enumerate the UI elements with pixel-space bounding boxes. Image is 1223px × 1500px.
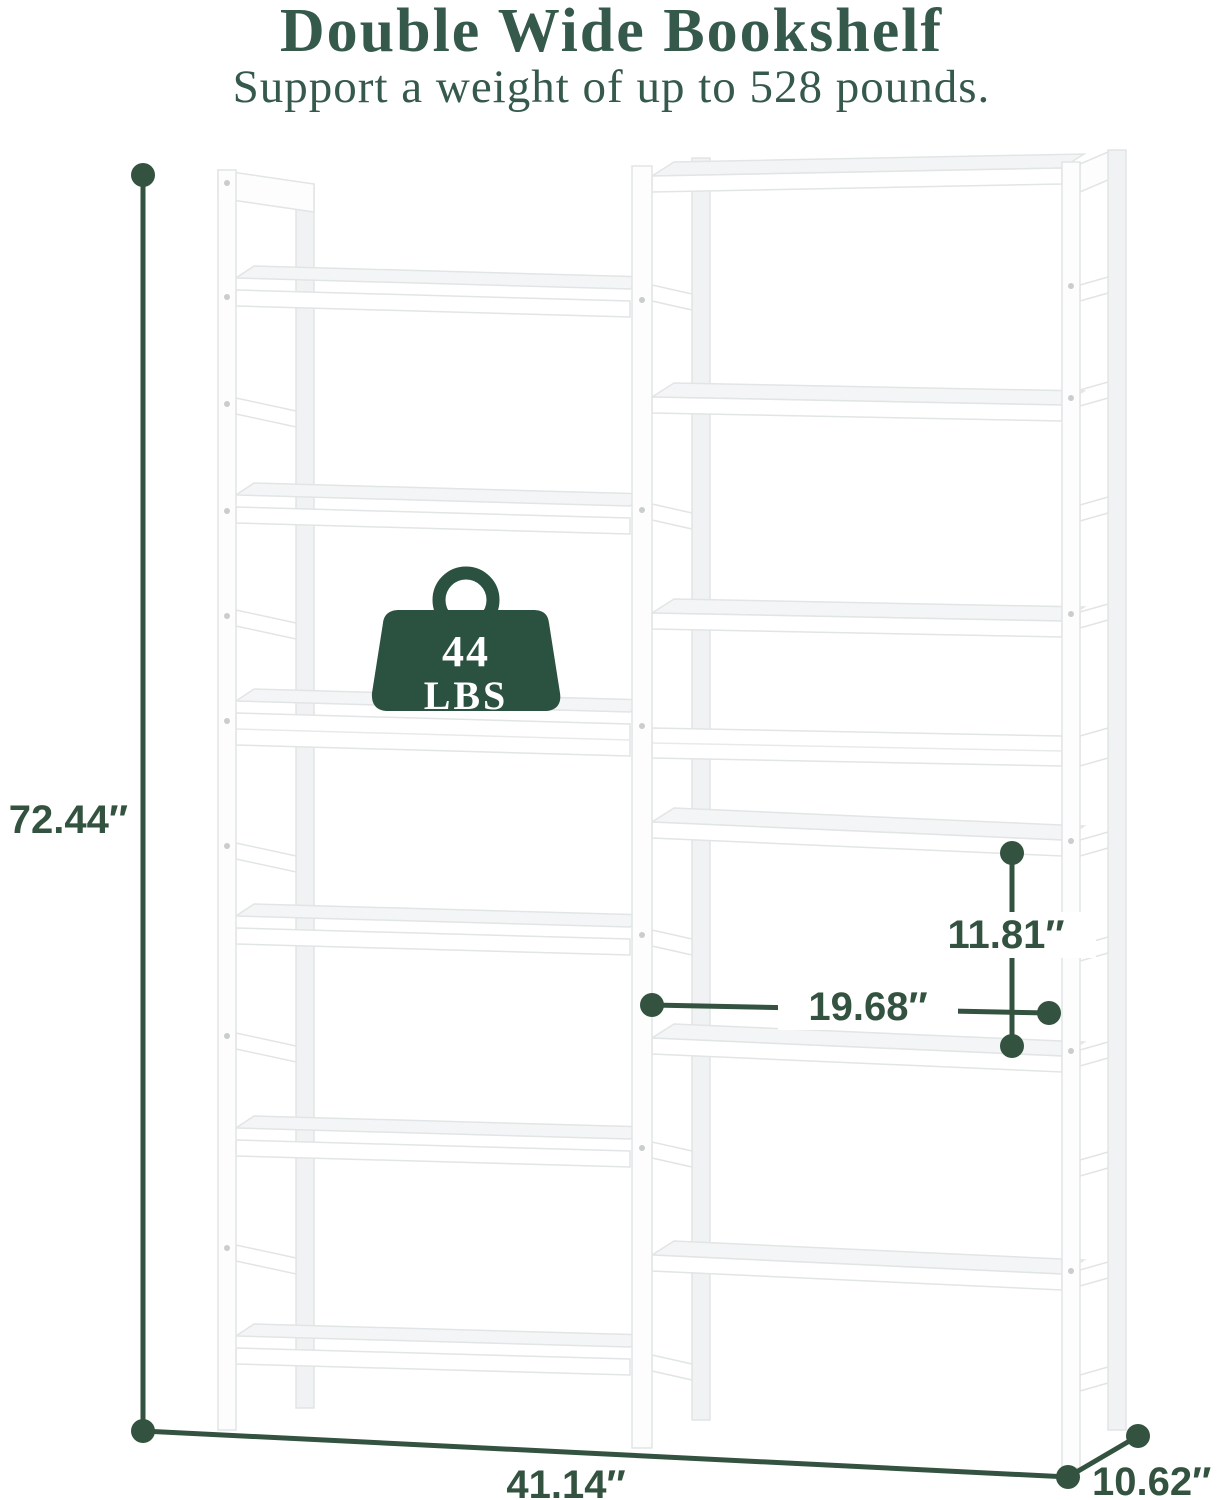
right-unit-rear-right-post bbox=[1108, 150, 1126, 1430]
right-unit-front-left-post bbox=[632, 166, 652, 1448]
width-dimension-label: 41.14″ bbox=[464, 1464, 668, 1500]
right-unit-rear-left-post bbox=[692, 158, 710, 1420]
right-unit bbox=[632, 150, 1126, 1468]
bookshelf-illustration bbox=[0, 0, 1223, 1500]
right-unit-shelves bbox=[652, 154, 1084, 1290]
left-unit-front-post bbox=[218, 170, 236, 1430]
product-dimension-diagram: Double Wide Bookshelf Support a weight o… bbox=[0, 0, 1223, 1500]
page-title: Double Wide Bookshelf bbox=[0, 0, 1223, 62]
shelf-spacing-dimension-label: 11.81″ bbox=[916, 912, 1096, 958]
inner-width-dimension-label: 19.68″ bbox=[778, 984, 958, 1030]
weight-badge-unit: LBS bbox=[386, 672, 546, 719]
page-subtitle: Support a weight of up to 528 pounds. bbox=[0, 64, 1223, 111]
right-unit-right-rungs bbox=[1080, 277, 1108, 1391]
right-unit-top-rail bbox=[1080, 152, 1108, 192]
left-unit-rear-post bbox=[296, 184, 314, 1408]
weight-badge-value: 44 bbox=[386, 626, 546, 677]
left-unit bbox=[218, 170, 648, 1430]
height-dimension-label: 72.44″ bbox=[0, 799, 128, 841]
depth-dimension-label: 10.62″ bbox=[1092, 1461, 1223, 1500]
